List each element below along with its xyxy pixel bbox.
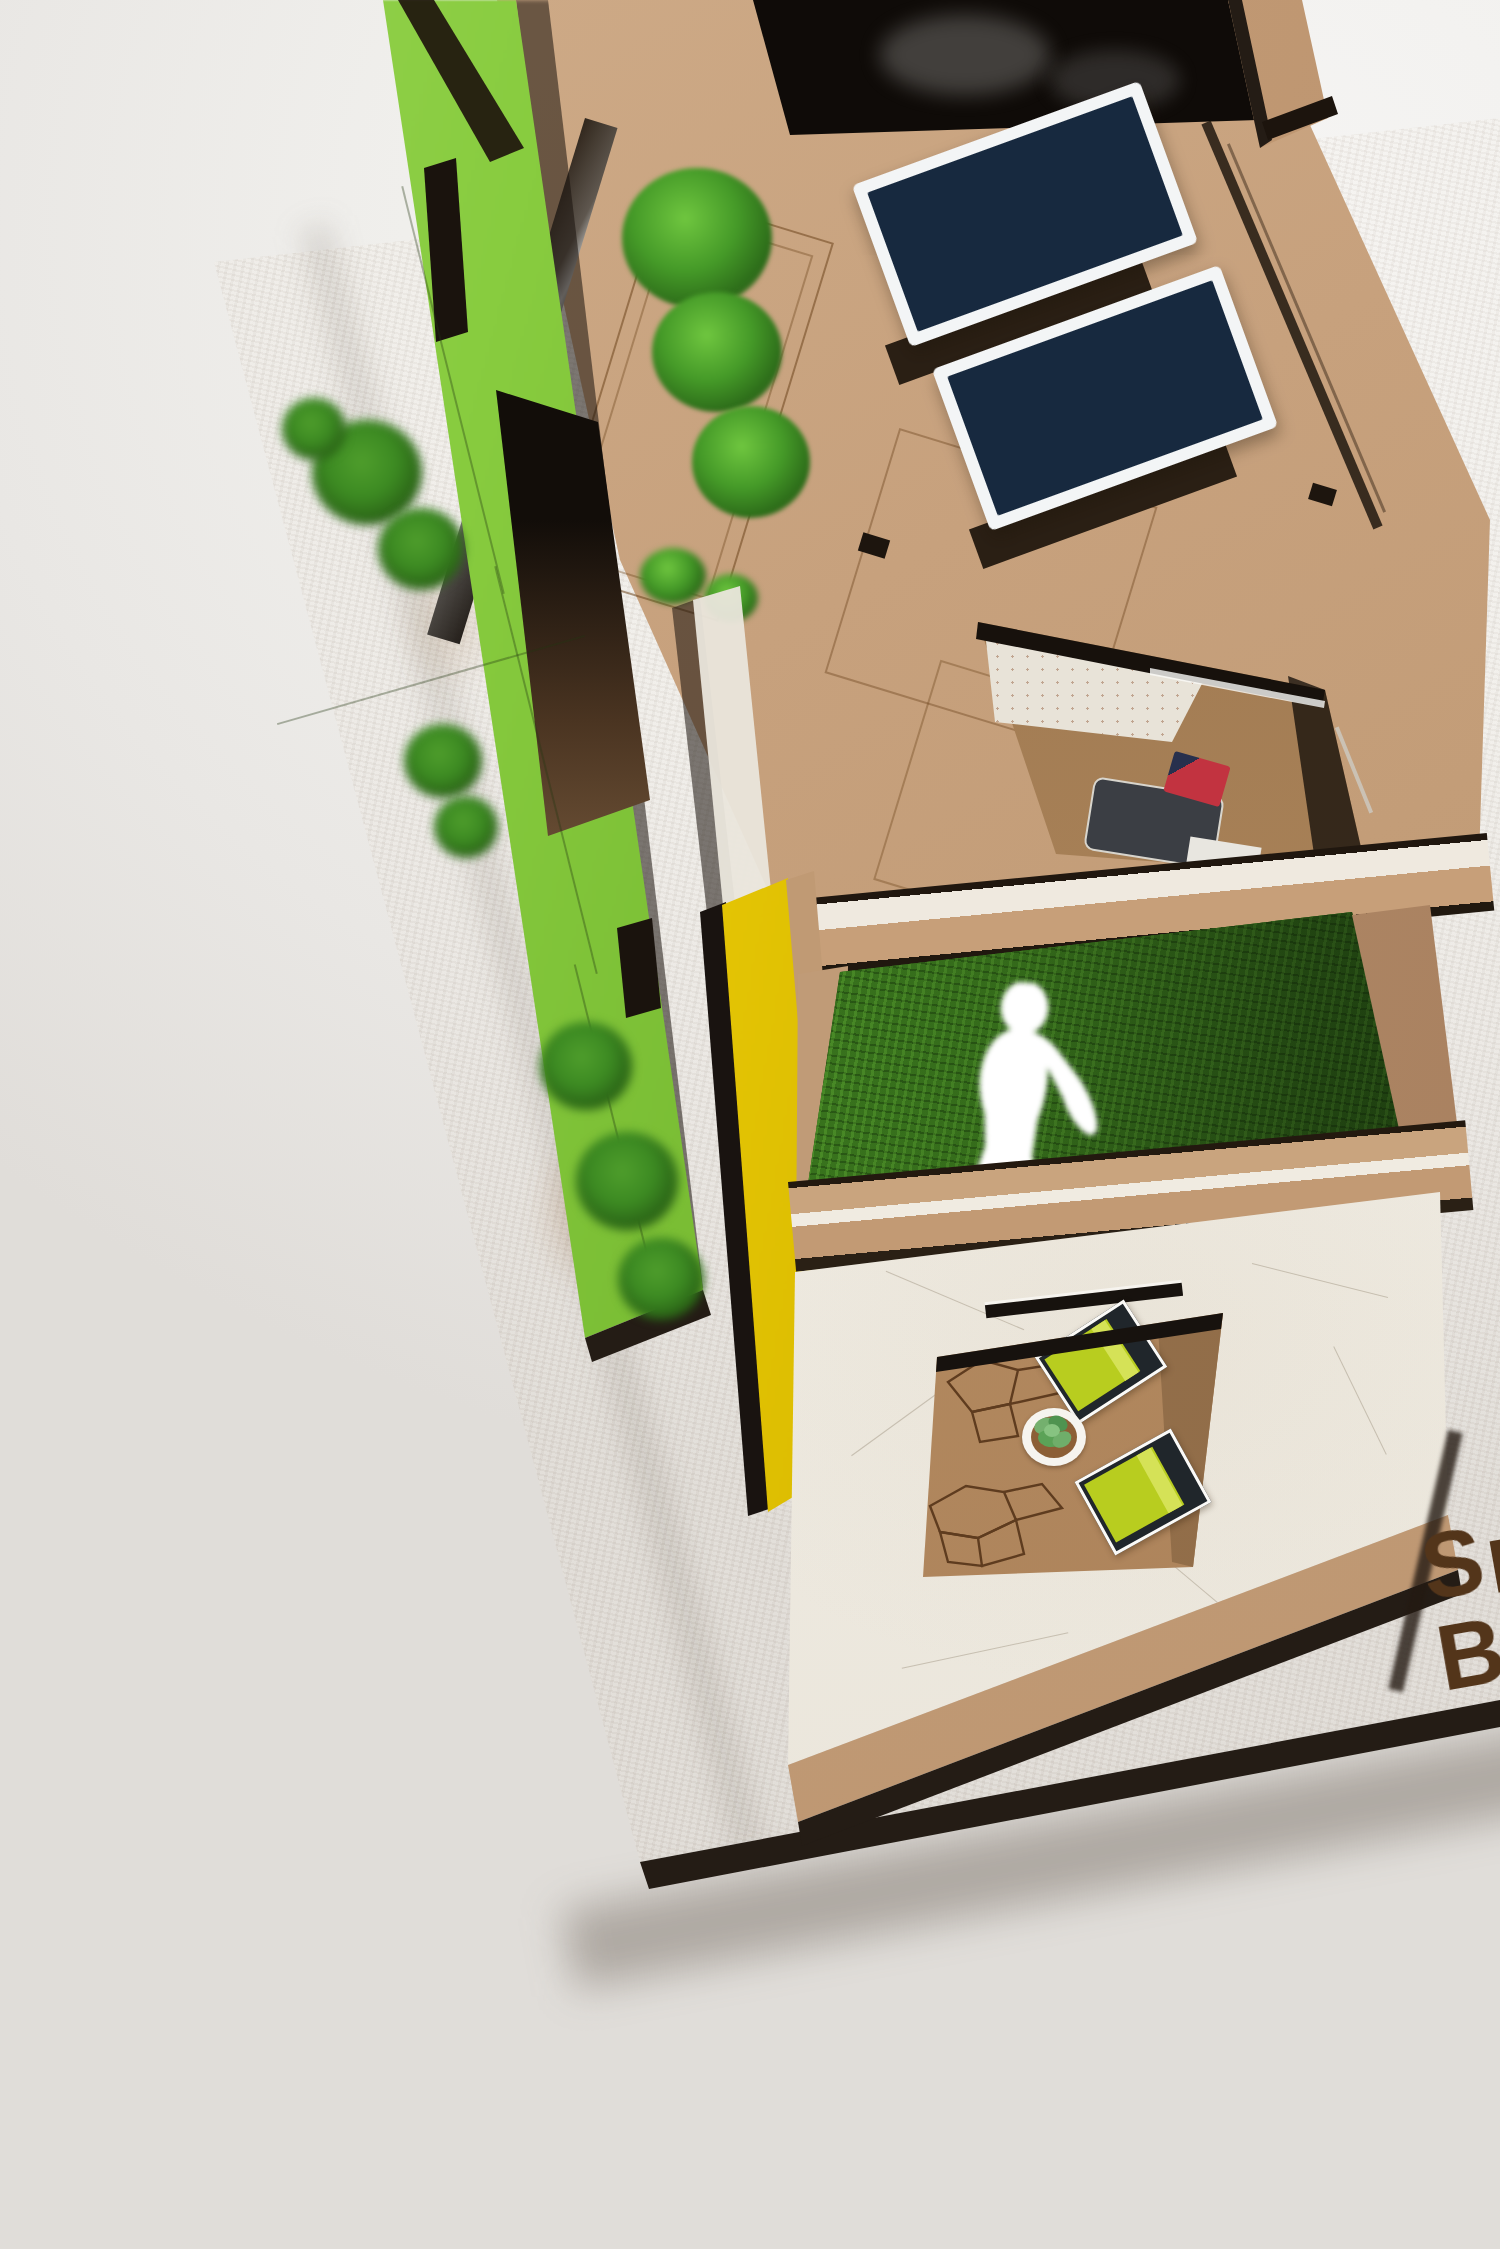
potted-plant [1022, 1408, 1086, 1466]
grass-tuft [618, 1238, 704, 1320]
roof-shrub [652, 292, 782, 412]
grass-tuft [434, 796, 498, 858]
model-photo-stage: S B [0, 0, 1500, 2249]
grass-tuft [378, 508, 464, 590]
roof-shrub [692, 406, 810, 518]
roof-shrub [622, 168, 772, 308]
grass-tuft [576, 1132, 678, 1230]
grass-tuft [282, 398, 346, 460]
grass-tuft [404, 724, 482, 798]
grass-tuft [540, 1022, 632, 1110]
roof-shrub [640, 548, 706, 604]
